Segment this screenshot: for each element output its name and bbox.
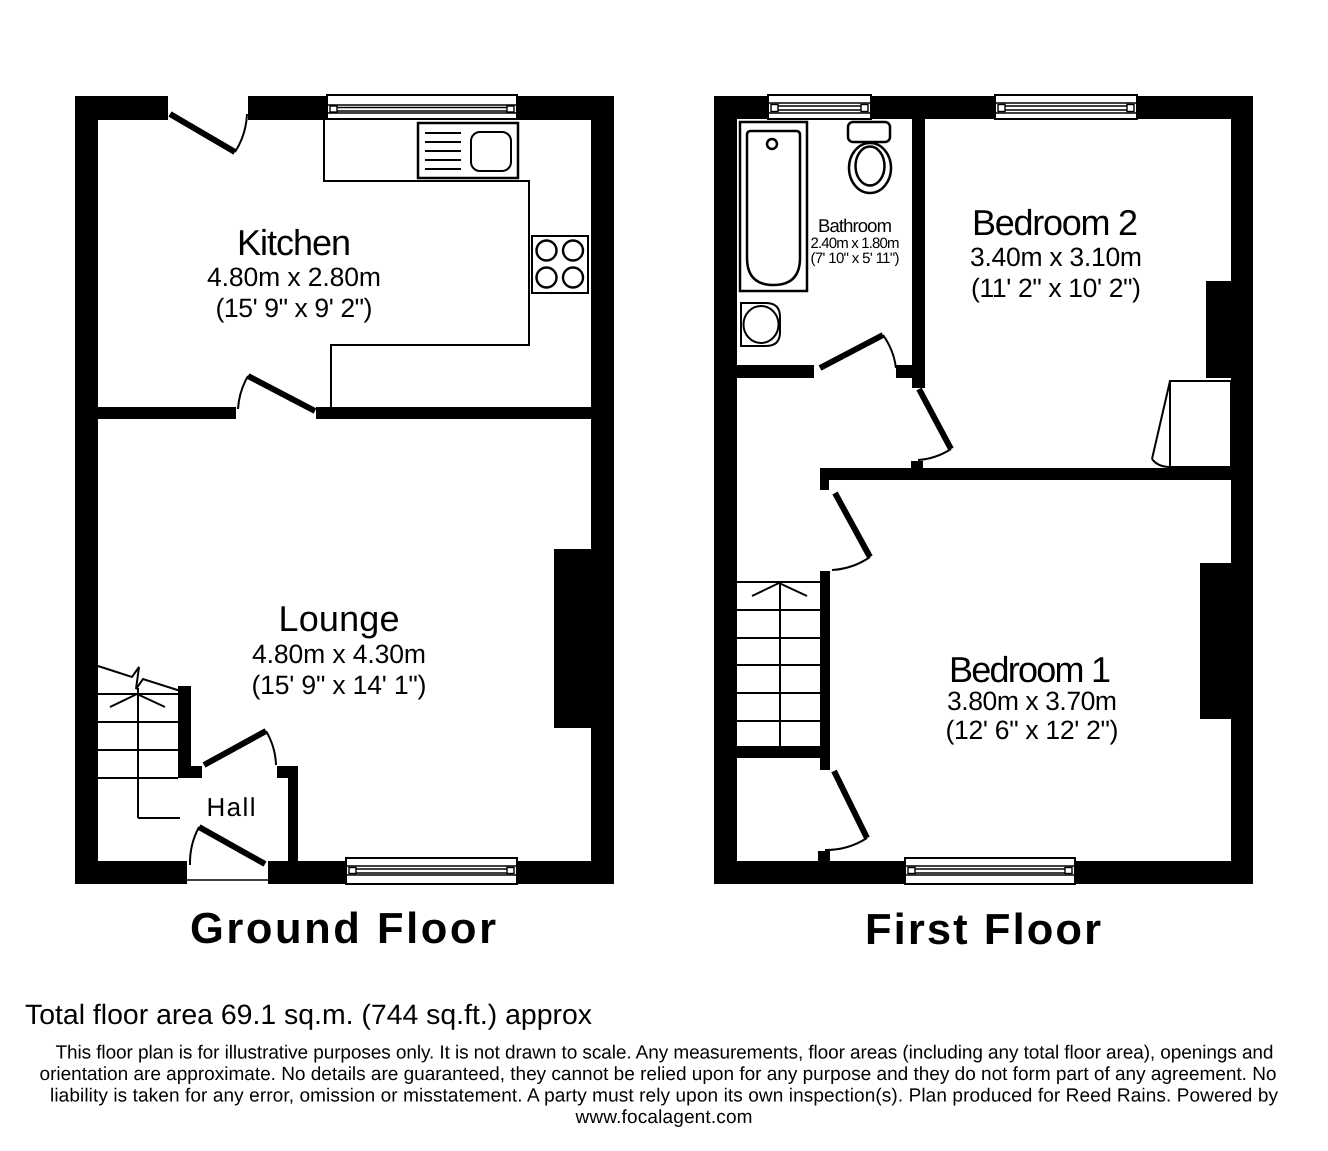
svg-text:(15' 9" x 9' 2"): (15' 9" x 9' 2") xyxy=(216,293,373,323)
svg-text:Total floor area 69.1 sq.m. (7: Total floor area 69.1 sq.m. (744 sq.ft.)… xyxy=(25,999,592,1030)
svg-text:This floor plan is for illustr: This floor plan is for illustrative purp… xyxy=(56,1043,1274,1064)
svg-text:(12' 6" x 12' 2"): (12' 6" x 12' 2") xyxy=(946,715,1119,745)
svg-text:3.40m x 3.10m: 3.40m x 3.10m xyxy=(970,242,1142,272)
svg-text:Kitchen: Kitchen xyxy=(237,222,351,263)
svg-text:Bathroom: Bathroom xyxy=(818,215,892,236)
svg-text:First Floor: First Floor xyxy=(865,906,1101,954)
svg-text:3.80m x 3.70m: 3.80m x 3.70m xyxy=(947,686,1117,716)
svg-text:www.focalagent.com: www.focalagent.com xyxy=(575,1107,753,1128)
svg-text:(7' 10" x 5' 11"): (7' 10" x 5' 11") xyxy=(811,250,900,267)
svg-text:orientation are approximate. N: orientation are approximate. No details … xyxy=(40,1064,1277,1085)
svg-text:(15' 9" x 14' 1"): (15' 9" x 14' 1") xyxy=(252,670,427,700)
svg-text:Bedroom 1: Bedroom 1 xyxy=(949,649,1111,690)
svg-text:4.80m x 4.30m: 4.80m x 4.30m xyxy=(252,639,426,669)
svg-text:Hall: Hall xyxy=(207,792,256,822)
svg-text:Lounge: Lounge xyxy=(279,598,400,639)
svg-text:Ground Floor: Ground Floor xyxy=(190,905,496,953)
svg-text:4.80m x 2.80m: 4.80m x 2.80m xyxy=(207,262,381,292)
svg-text:(11' 2" x 10' 2"): (11' 2" x 10' 2") xyxy=(971,273,1141,303)
svg-text:Bedroom 2: Bedroom 2 xyxy=(972,202,1138,243)
svg-text:liability is taken for any err: liability is taken for any error, omissi… xyxy=(50,1086,1279,1107)
